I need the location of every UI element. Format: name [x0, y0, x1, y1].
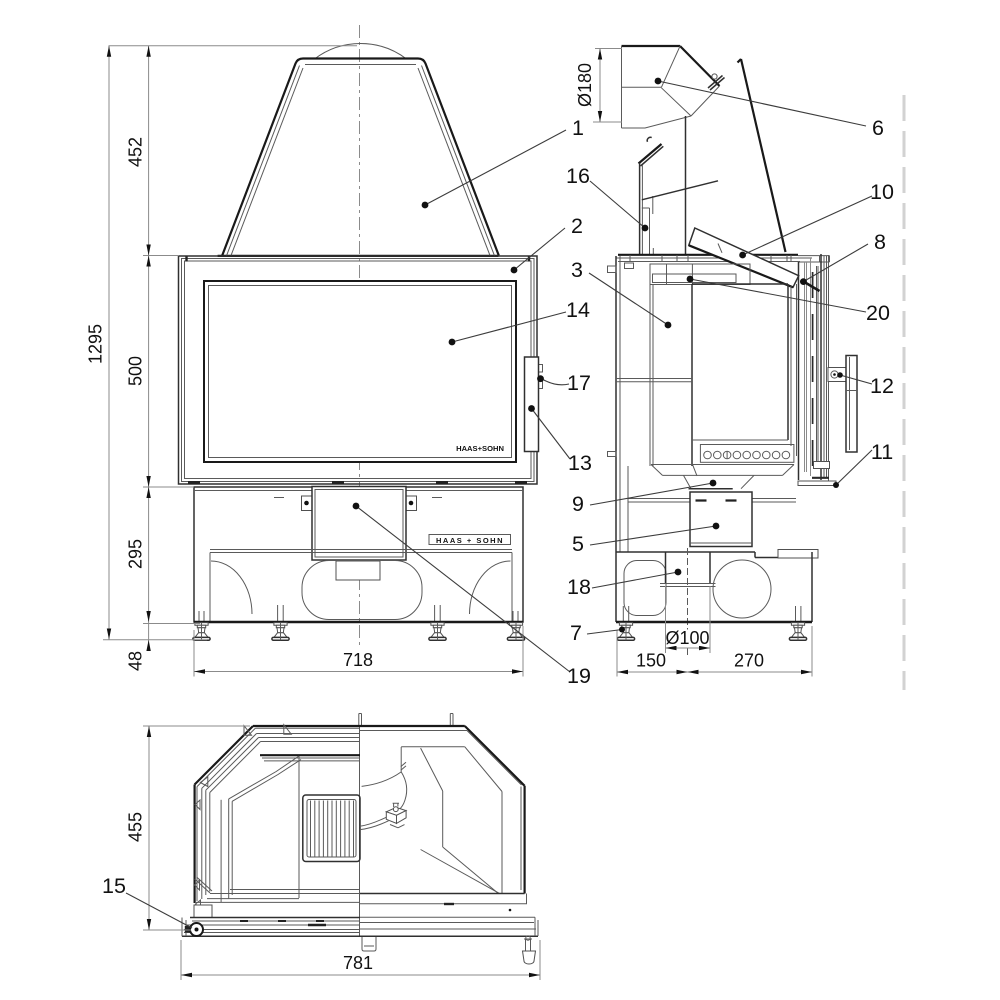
- svg-text:Ø100: Ø100: [665, 628, 709, 648]
- svg-text:48: 48: [126, 651, 146, 671]
- svg-text:2: 2: [571, 214, 583, 238]
- svg-text:8: 8: [874, 230, 886, 254]
- svg-text:10: 10: [870, 180, 894, 204]
- svg-text:14: 14: [566, 298, 590, 322]
- svg-text:18: 18: [567, 575, 591, 599]
- svg-text:Ø180: Ø180: [575, 63, 595, 107]
- svg-text:3: 3: [571, 258, 583, 282]
- svg-text:HAAS+SOHN: HAAS+SOHN: [456, 444, 504, 453]
- svg-text:718: 718: [343, 650, 373, 670]
- svg-text:295: 295: [126, 539, 146, 569]
- svg-text:452: 452: [126, 137, 146, 167]
- svg-text:15: 15: [102, 874, 126, 898]
- svg-text:5: 5: [572, 532, 584, 556]
- svg-text:11: 11: [871, 440, 893, 464]
- svg-text:12: 12: [870, 374, 894, 398]
- svg-text:17: 17: [567, 371, 591, 395]
- svg-text:HAAS + SOHN: HAAS + SOHN: [436, 536, 504, 545]
- svg-text:20: 20: [866, 301, 890, 325]
- svg-text:6: 6: [872, 116, 884, 140]
- svg-text:16: 16: [566, 164, 590, 188]
- svg-text:150: 150: [636, 651, 666, 671]
- svg-text:7: 7: [570, 621, 582, 645]
- svg-text:270: 270: [734, 651, 764, 671]
- svg-text:1295: 1295: [86, 324, 106, 364]
- svg-text:1: 1: [572, 116, 584, 140]
- svg-text:781: 781: [343, 953, 373, 973]
- svg-text:500: 500: [126, 356, 146, 386]
- svg-text:455: 455: [126, 812, 146, 842]
- svg-text:19: 19: [567, 664, 591, 688]
- svg-text:13: 13: [568, 451, 592, 475]
- svg-text:9: 9: [572, 492, 584, 516]
